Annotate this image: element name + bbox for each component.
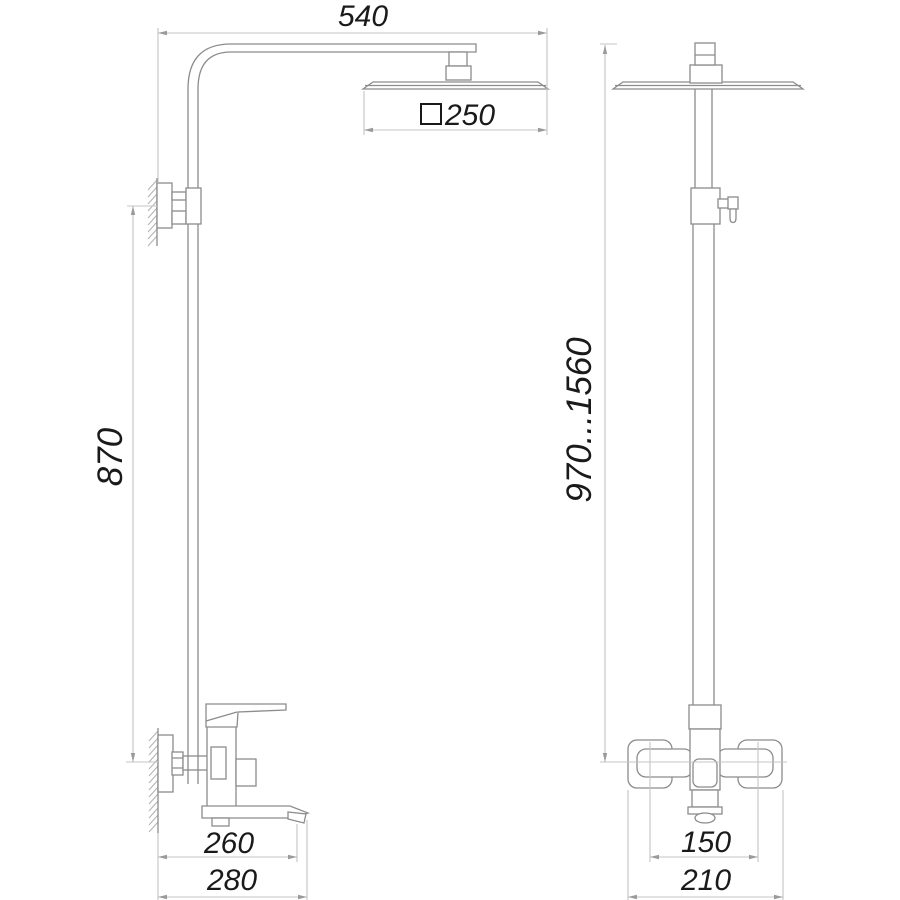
arrowhead <box>650 855 659 859</box>
inlet-capsule-right <box>717 749 773 777</box>
mixer-handle-side <box>206 704 286 727</box>
wall-bracket-arm-bottom <box>172 211 186 224</box>
side-view <box>148 44 548 833</box>
spout-front <box>692 790 718 807</box>
height-adjuster-collar <box>691 188 720 224</box>
head-connector-base <box>690 65 722 83</box>
wall-bracket-plate-upper <box>157 183 172 228</box>
arrowhead <box>158 895 167 899</box>
dim-210-label: 210 <box>680 864 731 897</box>
riser-tee-collar <box>211 747 226 779</box>
mixer-handle-front <box>693 759 717 787</box>
arrowhead <box>288 855 297 859</box>
arrowhead <box>131 753 135 762</box>
dim-870-label: 870 <box>91 427 130 486</box>
arrowhead <box>131 206 135 215</box>
lower-tube-front <box>693 224 714 706</box>
arrowhead <box>774 895 783 899</box>
arrowhead <box>538 31 547 35</box>
wall-plate-lower <box>158 735 173 792</box>
upper-pipe-front <box>695 89 712 188</box>
dim-540-label: 540 <box>338 0 388 33</box>
arrowhead <box>364 128 373 132</box>
diverter-knob-side <box>236 759 256 786</box>
mixer-foot <box>212 818 229 826</box>
dim-280-label: 280 <box>206 864 257 897</box>
inlet-capsule-left <box>637 749 693 777</box>
eccentric-nut <box>172 752 183 775</box>
dim-150-label: 150 <box>681 826 731 859</box>
adjuster-knob-neck <box>718 199 729 208</box>
riser-pipe-and-arm <box>188 44 476 784</box>
aerator <box>695 813 715 823</box>
square-section-symbol-icon <box>421 104 441 124</box>
wall-bracket-arm-top <box>172 192 186 200</box>
shower-system-drawing: 540 250 870 260 280 970... <box>0 0 900 900</box>
arrowhead <box>603 45 607 54</box>
wall-hatching-lower <box>149 731 158 832</box>
spout-tip-side <box>288 812 306 823</box>
dim-250-label: 250 <box>444 99 495 132</box>
arrowhead <box>749 855 758 859</box>
riser-base-collar-front <box>689 705 721 729</box>
arrowhead <box>538 128 547 132</box>
bracket-pipe-collar <box>186 188 201 224</box>
arrowhead <box>158 31 167 35</box>
adjuster-knob-lever <box>730 209 736 223</box>
technical-drawing-canvas: 540 250 870 260 280 970... <box>0 0 900 900</box>
head-connector-neck <box>695 43 715 65</box>
wall-hatching-upper <box>148 180 157 246</box>
front-view <box>613 43 803 823</box>
arm-connector-lower <box>446 66 471 80</box>
arrowhead <box>298 895 307 899</box>
arrowhead <box>628 895 637 899</box>
arm-connector-upper <box>449 52 467 66</box>
dim-260-label: 260 <box>203 827 254 860</box>
dim-height-range-label: 970...1560 <box>560 337 599 503</box>
arrowhead <box>603 753 607 762</box>
adjuster-knob-head <box>728 197 738 209</box>
arrowhead <box>158 855 167 859</box>
